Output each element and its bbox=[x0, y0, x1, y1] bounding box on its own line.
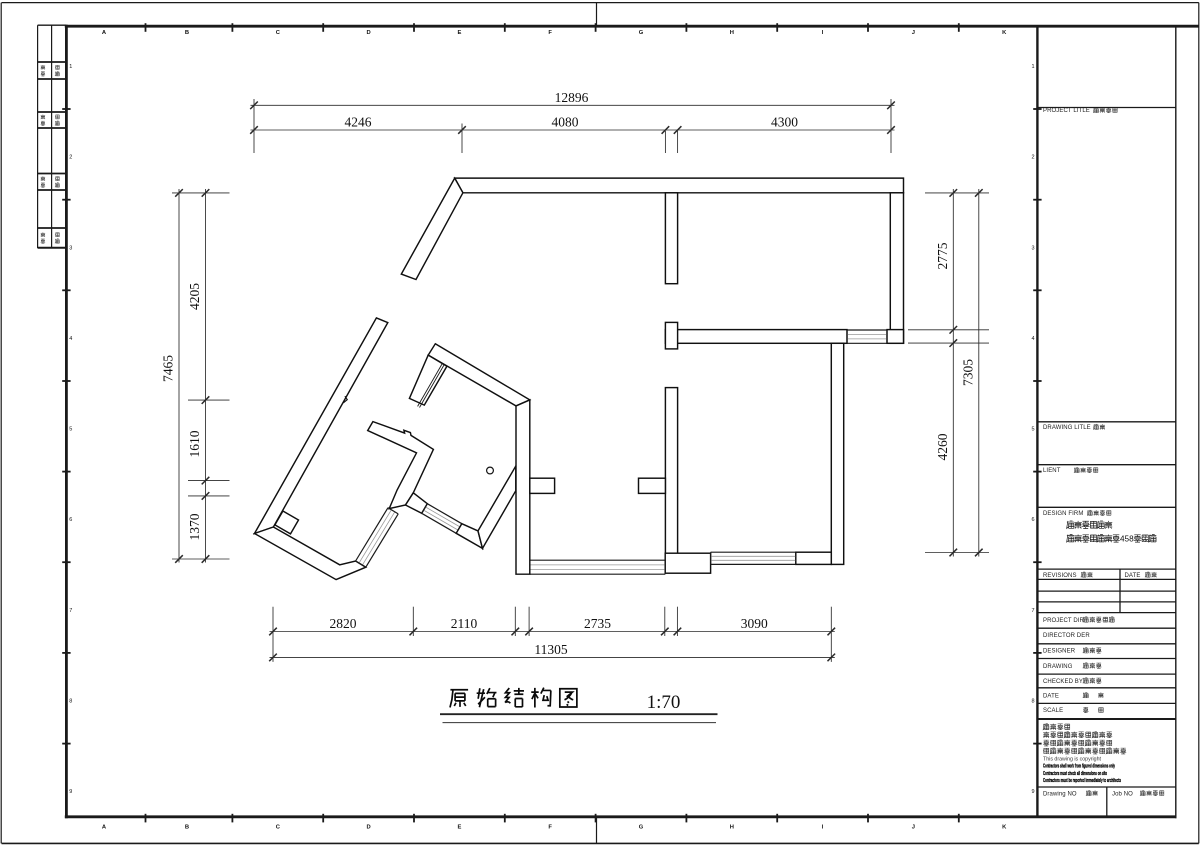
svg-text:6: 6 bbox=[1031, 517, 1034, 523]
svg-text:Drawing NO: Drawing NO bbox=[1043, 791, 1077, 797]
svg-text:7465: 7465 bbox=[161, 355, 176, 382]
svg-text:2: 2 bbox=[1031, 155, 1034, 161]
svg-text:J: J bbox=[912, 824, 915, 830]
svg-text:12896: 12896 bbox=[555, 90, 589, 105]
svg-text:Contractors must check all dim: Contractors must check all dimensions on… bbox=[1043, 771, 1107, 777]
svg-text:4300: 4300 bbox=[771, 115, 798, 130]
svg-text:8: 8 bbox=[1031, 699, 1034, 705]
svg-text:LIENT: LIENT bbox=[1043, 468, 1061, 474]
svg-text:DATE: DATE bbox=[1043, 693, 1059, 699]
svg-text:PROJECT DIR: PROJECT DIR bbox=[1043, 618, 1085, 624]
svg-text:7: 7 bbox=[69, 608, 72, 614]
svg-text:2735: 2735 bbox=[584, 616, 611, 631]
svg-text:DATE: DATE bbox=[1125, 573, 1141, 579]
svg-text:2: 2 bbox=[69, 155, 72, 161]
svg-text:G: G bbox=[639, 30, 644, 36]
svg-text:REVISIONS: REVISIONS bbox=[1043, 573, 1077, 579]
svg-text:7: 7 bbox=[1031, 608, 1034, 614]
svg-text:9: 9 bbox=[1031, 789, 1034, 795]
svg-text:H: H bbox=[730, 30, 734, 36]
svg-text:D: D bbox=[367, 30, 371, 36]
svg-text:B: B bbox=[185, 824, 189, 830]
svg-text:J: J bbox=[912, 30, 915, 36]
svg-text:DESIGNER: DESIGNER bbox=[1043, 649, 1076, 655]
svg-text:E: E bbox=[457, 824, 461, 830]
svg-text:2110: 2110 bbox=[451, 616, 478, 631]
svg-text:7305: 7305 bbox=[960, 359, 975, 386]
svg-text:B: B bbox=[185, 30, 189, 36]
svg-text:6: 6 bbox=[69, 517, 72, 523]
svg-text:Contractors must be reported i: Contractors must be reported immediately… bbox=[1043, 778, 1121, 784]
svg-text:11305: 11305 bbox=[534, 642, 567, 657]
svg-text:4205: 4205 bbox=[187, 283, 202, 310]
svg-text:1370: 1370 bbox=[187, 513, 202, 540]
svg-text:1: 1 bbox=[69, 64, 72, 70]
svg-text:F: F bbox=[548, 30, 552, 36]
svg-text:D: D bbox=[367, 824, 371, 830]
svg-text:DESIGN FIRM: DESIGN FIRM bbox=[1043, 511, 1083, 517]
svg-text:4080: 4080 bbox=[552, 115, 579, 130]
svg-text:3: 3 bbox=[1031, 245, 1034, 251]
svg-text:9: 9 bbox=[69, 789, 72, 795]
svg-text:CHECKED BY: CHECKED BY bbox=[1043, 679, 1083, 685]
svg-text:DIRECTOR DER: DIRECTOR DER bbox=[1043, 633, 1090, 639]
svg-text:2775: 2775 bbox=[935, 242, 950, 269]
svg-text:4260: 4260 bbox=[935, 433, 950, 460]
svg-text:Contractors shall work from fi: Contractors shall work from figured dime… bbox=[1043, 764, 1115, 770]
svg-text:H: H bbox=[730, 824, 734, 830]
svg-text:F: F bbox=[548, 824, 552, 830]
svg-text:E: E bbox=[457, 30, 461, 36]
svg-text:SCALE: SCALE bbox=[1043, 708, 1063, 714]
svg-text:DRAWING: DRAWING bbox=[1043, 664, 1073, 670]
svg-text:PROJECT LITLE: PROJECT LITLE bbox=[1043, 108, 1090, 114]
svg-text:5: 5 bbox=[69, 427, 72, 433]
svg-text:3: 3 bbox=[69, 245, 72, 251]
svg-text:DRAWING LITLE: DRAWING LITLE bbox=[1043, 425, 1091, 431]
svg-text:5: 5 bbox=[1031, 427, 1034, 433]
svg-text:4: 4 bbox=[69, 336, 72, 342]
svg-text:4246: 4246 bbox=[345, 115, 372, 130]
svg-text:1:70: 1:70 bbox=[647, 692, 681, 713]
svg-text:458: 458 bbox=[1120, 535, 1134, 544]
svg-text:3090: 3090 bbox=[741, 616, 768, 631]
svg-text:G: G bbox=[639, 824, 644, 830]
svg-text:8: 8 bbox=[69, 699, 72, 705]
svg-text:Job NO: Job NO bbox=[1112, 791, 1133, 797]
svg-text:4: 4 bbox=[1031, 336, 1034, 342]
svg-text:This drawing is copyright: This drawing is copyright bbox=[1043, 757, 1102, 763]
svg-text:1: 1 bbox=[1031, 64, 1034, 70]
svg-text:2820: 2820 bbox=[330, 616, 357, 631]
svg-text:1610: 1610 bbox=[187, 430, 202, 457]
